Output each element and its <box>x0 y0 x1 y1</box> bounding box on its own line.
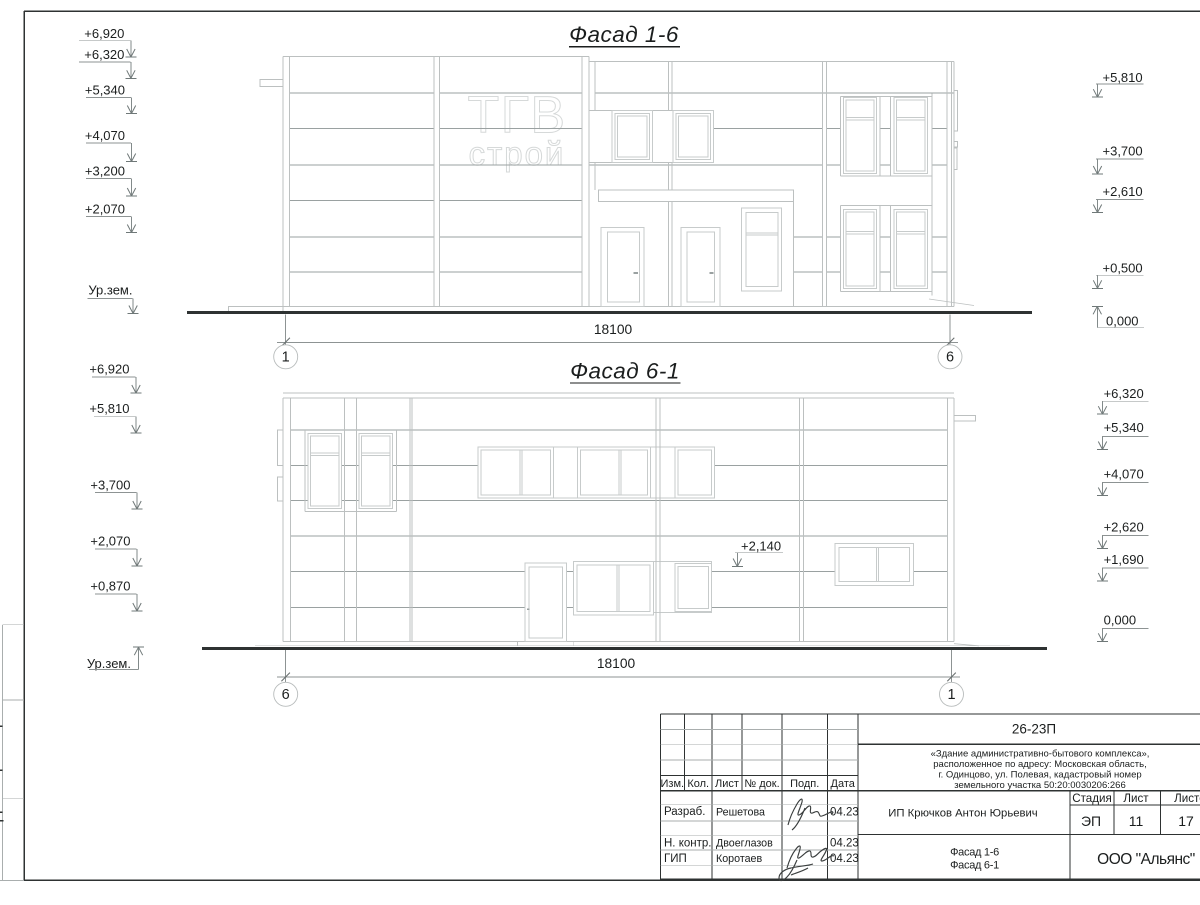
svg-text:+6,320: +6,320 <box>1104 386 1144 401</box>
svg-text:Ур.зем.: Ур.зем. <box>87 656 131 671</box>
svg-text:Решетова: Решетова <box>716 807 765 819</box>
svg-text:+2,070: +2,070 <box>85 202 125 217</box>
svg-text:Фасад 1-6: Фасад 1-6 <box>569 22 679 47</box>
svg-text:Лист: Лист <box>1123 792 1149 805</box>
svg-text:+2,070: +2,070 <box>90 534 130 549</box>
svg-text:26-23П: 26-23П <box>1012 722 1056 737</box>
svg-text:ООО "Альянс": ООО "Альянс" <box>1097 851 1195 868</box>
svg-text:+3,700: +3,700 <box>90 478 130 493</box>
svg-text:+5,340: +5,340 <box>85 83 125 98</box>
svg-text:+4,070: +4,070 <box>1104 467 1144 482</box>
svg-text:Кол.: Кол. <box>687 778 709 790</box>
svg-text:+2,140: +2,140 <box>741 539 781 554</box>
svg-text:ЭП: ЭП <box>1081 813 1101 829</box>
svg-text:«Здание административно-бытово: «Здание административно-бытового комплек… <box>931 749 1150 760</box>
svg-text:Подп.: Подп. <box>790 778 819 790</box>
svg-text:+5,810: +5,810 <box>89 401 129 416</box>
svg-text:+0,870: +0,870 <box>90 579 130 594</box>
svg-text:1: 1 <box>282 350 290 366</box>
svg-text:земельного участка 50:20:00302: земельного участка 50:20:0030206:266 <box>954 780 1126 791</box>
svg-text:Ур.зем.: Ур.зем. <box>88 282 132 297</box>
svg-text:Дата: Дата <box>831 778 856 790</box>
svg-text:Коротаев: Коротаев <box>716 853 762 865</box>
svg-text:строй: строй <box>469 135 566 172</box>
svg-text:г. Одинцово, ул. Полевая, када: г. Одинцово, ул. Полевая, кадастровый но… <box>938 770 1141 781</box>
svg-text:+5,810: +5,810 <box>1103 70 1143 85</box>
svg-text:+1,690: +1,690 <box>1104 552 1144 567</box>
svg-text:Разраб.: Разраб. <box>664 806 705 818</box>
svg-text:Лист: Лист <box>715 778 739 790</box>
svg-text:+0,500: +0,500 <box>1103 261 1143 276</box>
svg-text:11: 11 <box>1129 813 1144 829</box>
svg-text:04.23: 04.23 <box>830 838 859 850</box>
svg-text:Листов: Листов <box>1174 792 1200 805</box>
svg-text:18100: 18100 <box>594 322 633 337</box>
svg-text:6: 6 <box>946 350 954 366</box>
svg-text:+3,200: +3,200 <box>85 164 125 179</box>
svg-text:04.23: 04.23 <box>830 853 859 865</box>
svg-text:№ док.: № док. <box>744 778 779 790</box>
svg-text:6: 6 <box>282 687 290 703</box>
svg-text:17: 17 <box>1178 813 1194 829</box>
svg-text:+2,620: +2,620 <box>1104 520 1144 535</box>
svg-text:+4,070: +4,070 <box>85 128 125 143</box>
svg-text:Фасад 1-6: Фасад 1-6 <box>950 847 999 859</box>
svg-text:1: 1 <box>947 687 955 703</box>
svg-text:+6,920: +6,920 <box>84 26 124 41</box>
svg-text:Изм.: Изм. <box>661 778 685 790</box>
svg-text:Н. контр.: Н. контр. <box>664 838 711 850</box>
svg-text:+6,320: +6,320 <box>84 47 124 62</box>
svg-text:+6,920: +6,920 <box>89 362 129 377</box>
svg-text:ИП Крючков Антон Юрьевич: ИП Крючков Антон Юрьевич <box>888 808 1038 820</box>
svg-text:0,000: 0,000 <box>1106 313 1139 328</box>
svg-text:Стадия: Стадия <box>1072 792 1112 805</box>
svg-text:Фасад 6-1: Фасад 6-1 <box>950 860 999 872</box>
svg-text:+2,610: +2,610 <box>1103 184 1143 199</box>
svg-text:ГИП: ГИП <box>664 853 687 865</box>
svg-text:Двоеглазов: Двоеглазов <box>716 838 773 850</box>
svg-text:расположенное по адресу: Моско: расположенное по адресу: Московская обла… <box>933 759 1146 770</box>
svg-text:04.23: 04.23 <box>830 807 859 819</box>
svg-text:+5,340: +5,340 <box>1104 420 1144 435</box>
svg-text:+3,700: +3,700 <box>1103 144 1143 159</box>
svg-text:Фасад 6-1: Фасад 6-1 <box>570 358 680 383</box>
svg-text:18100: 18100 <box>597 656 636 671</box>
svg-text:0,000: 0,000 <box>1104 613 1137 628</box>
